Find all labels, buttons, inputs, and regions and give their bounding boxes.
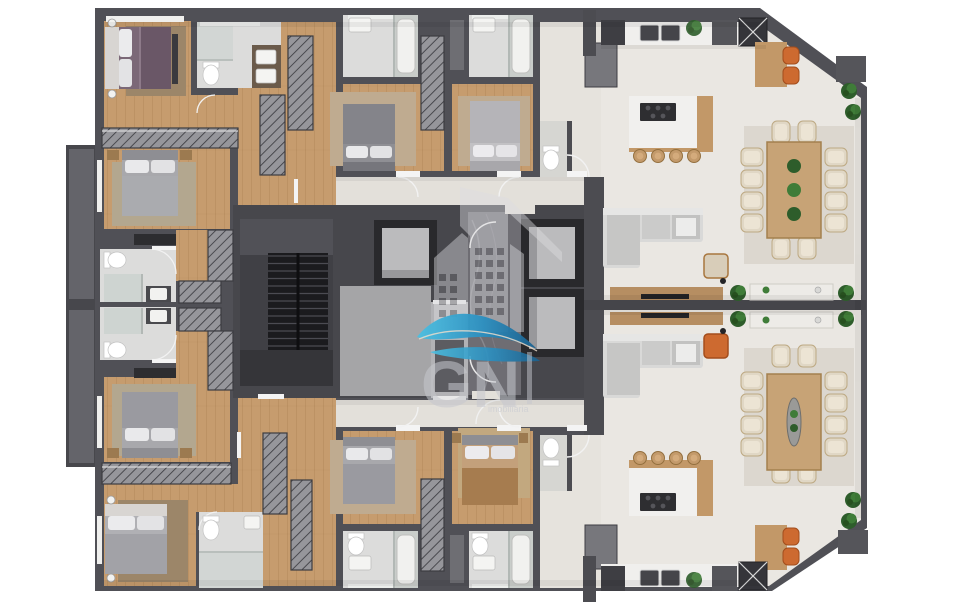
svg-text:imobiliária: imobiliária bbox=[488, 404, 529, 414]
